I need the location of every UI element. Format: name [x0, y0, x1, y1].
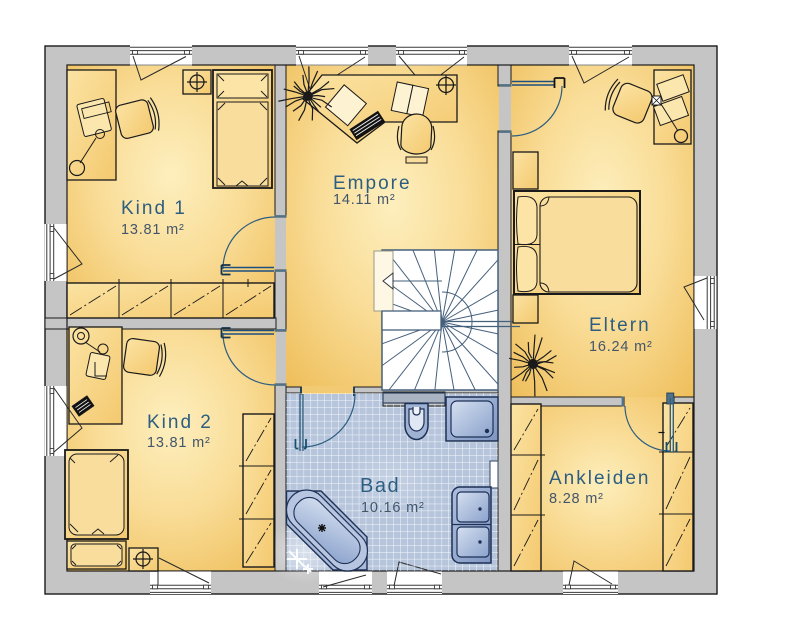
svg-text:8.28 m²: 8.28 m²	[549, 491, 604, 507]
svg-text:Empore: Empore	[333, 173, 412, 194]
svg-text:Bad: Bad	[360, 475, 400, 497]
svg-text:14.11 m²: 14.11 m²	[333, 192, 396, 208]
svg-text:Eltern: Eltern	[589, 315, 651, 336]
svg-text:Kind 1: Kind 1	[121, 198, 187, 219]
svg-text:Ankleiden: Ankleiden	[549, 468, 650, 489]
svg-text:Kind 2: Kind 2	[147, 412, 213, 433]
svg-text:13.81 m²: 13.81 m²	[121, 222, 185, 238]
svg-text:10.16 m²: 10.16 m²	[361, 500, 425, 516]
svg-text:16.24 m²: 16.24 m²	[589, 339, 653, 355]
svg-text:13.81 m²: 13.81 m²	[147, 435, 211, 451]
